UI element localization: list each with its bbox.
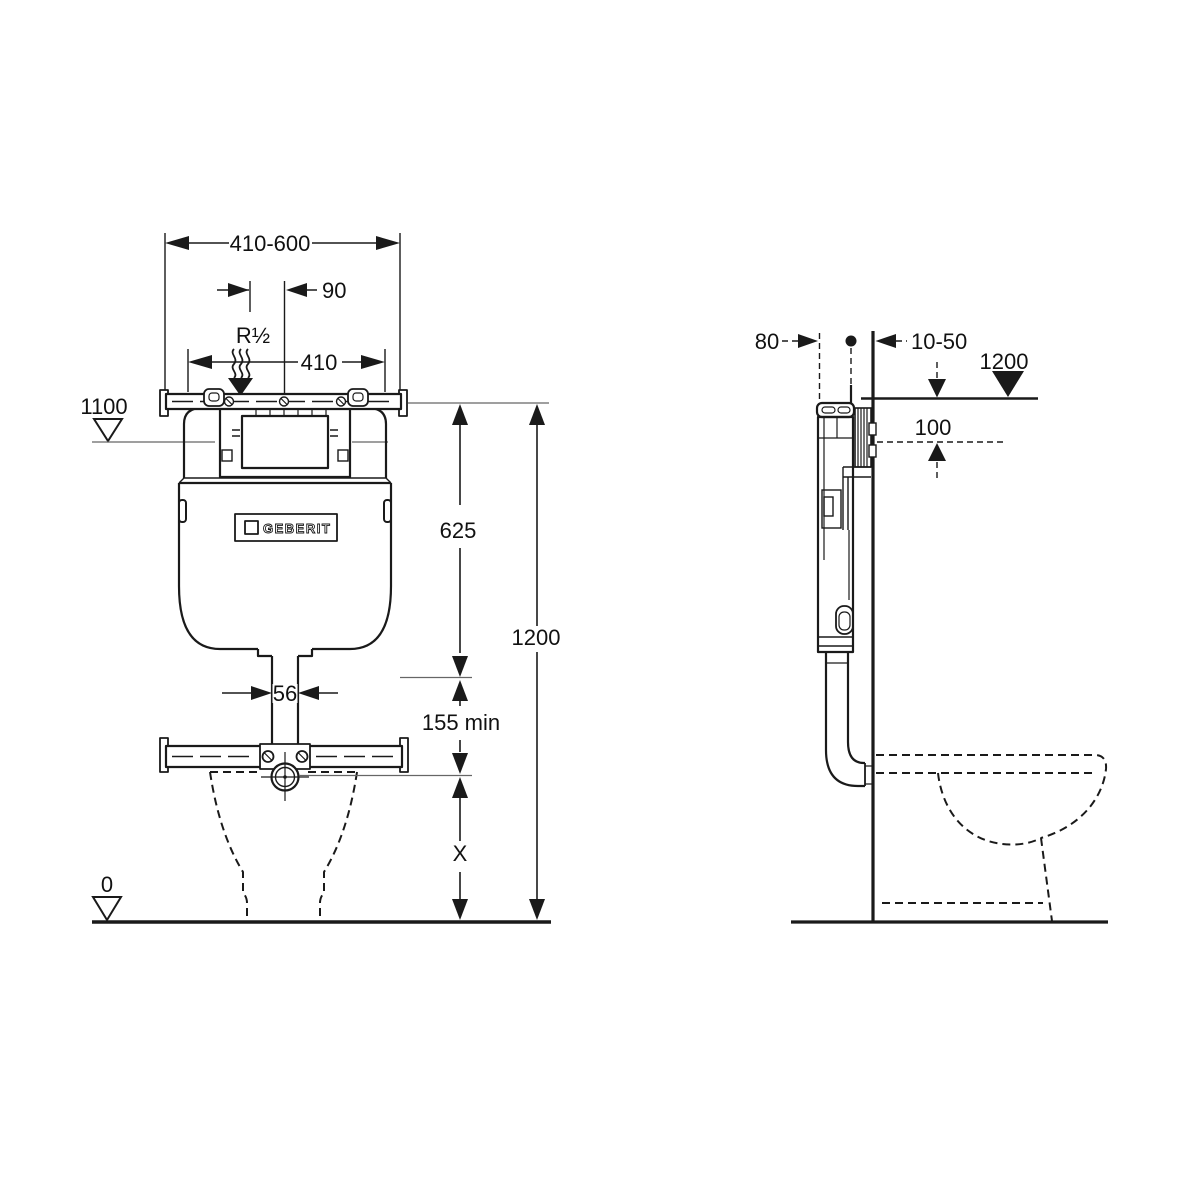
- dim-410-label: 410: [301, 350, 338, 375]
- dim-80-label: 80: [755, 329, 779, 354]
- supply-dot-icon: [846, 336, 857, 347]
- rail-clip-left: [204, 389, 224, 406]
- rail-clip-right: [348, 389, 368, 406]
- water-supply-label: R½: [236, 323, 270, 348]
- outlet-center-dot: [283, 775, 287, 779]
- installation-drawing: 410-600 90 R½ 410 1100: [0, 0, 1200, 1200]
- dim-90-label: 90: [322, 278, 346, 303]
- dim-10-50-label: 10-50: [911, 329, 967, 354]
- dim-56-label: 56: [273, 681, 297, 706]
- dim-x-label: X: [453, 841, 468, 866]
- side-tab-left: [179, 500, 186, 522]
- logo-text: GEBERIT: [263, 521, 331, 536]
- dim-625-label: 625: [440, 518, 477, 543]
- side-tab-right: [384, 500, 391, 522]
- level-1200-label: 1200: [980, 349, 1029, 374]
- dim-155-label: 155 min: [422, 710, 500, 735]
- geberit-logo: GEBERIT: [235, 514, 337, 541]
- technical-drawing-page: 410-600 90 R½ 410 1100: [0, 0, 1200, 1200]
- dim-width-range-label: 410-600: [230, 231, 311, 256]
- board-clip-upper: [869, 423, 876, 435]
- level-1100-label: 1100: [80, 394, 127, 419]
- board-clip-lower: [869, 445, 876, 457]
- dim-100-label: 100: [915, 415, 952, 440]
- dim-1200-label: 1200: [512, 625, 561, 650]
- level-0-label: 0: [101, 872, 113, 897]
